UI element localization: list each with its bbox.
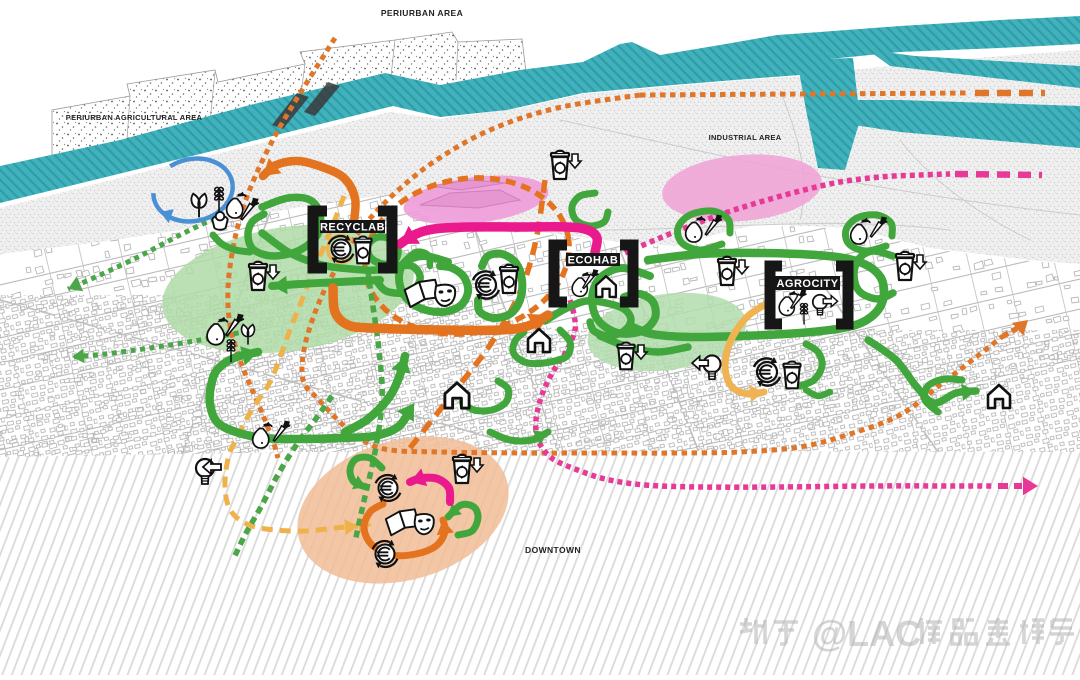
svg-text:PERIURBAN AREA: PERIURBAN AREA — [381, 8, 463, 18]
svg-text:AGROCITY: AGROCITY — [776, 278, 838, 290]
svg-text:RECYCLAB: RECYCLAB — [320, 221, 385, 233]
svg-text:@LAC: @LAC — [812, 613, 921, 654]
svg-text:ECOHAB: ECOHAB — [568, 254, 619, 266]
svg-text:PERIURBAN AGRICULTURAL AREA: PERIURBAN AGRICULTURAL AREA — [66, 113, 203, 122]
svg-text:DOWNTOWN: DOWNTOWN — [525, 545, 581, 555]
svg-text:INDUSTRIAL AREA: INDUSTRIAL AREA — [709, 133, 782, 142]
